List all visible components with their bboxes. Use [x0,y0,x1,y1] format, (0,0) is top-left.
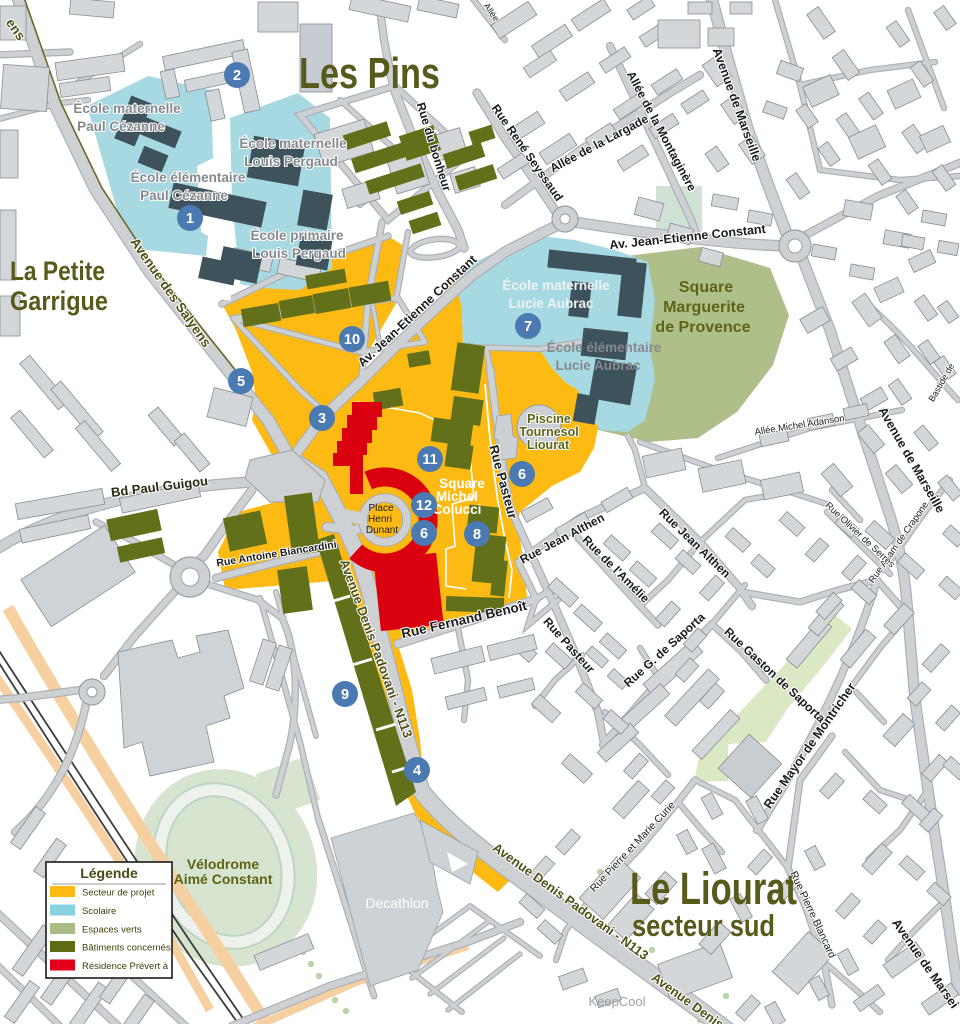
svg-text:École élémentaire: École élémentaire [547,340,662,355]
svg-text:Piscine: Piscine [527,412,571,426]
svg-text:École maternelle: École maternelle [239,136,347,151]
svg-text:Bâtiments concernés: Bâtiments concernés [82,943,171,954]
svg-text:6: 6 [420,526,428,542]
svg-text:Tournesol: Tournesol [519,425,579,439]
svg-text:KeepCool: KeepCool [588,994,645,1009]
svg-text:6: 6 [518,467,526,483]
svg-text:Paul Cézanne: Paul Cézanne [77,119,165,134]
svg-text:10: 10 [344,332,360,348]
svg-text:Vélodrome: Vélodrome [187,856,260,872]
svg-text:Louis Pergaud: Louis Pergaud [252,246,346,261]
svg-text:École élémentaire: École élémentaire [131,170,246,185]
svg-text:Place: Place [368,503,393,514]
svg-text:Scolaire: Scolaire [82,906,116,917]
svg-text:9: 9 [341,687,349,703]
svg-text:1: 1 [186,211,194,227]
svg-text:Liourat: Liourat [527,438,570,452]
svg-text:3: 3 [318,411,326,427]
svg-text:12: 12 [416,498,432,514]
svg-text:de Provence: de Provence [655,319,750,336]
svg-text:secteur sud: secteur sud [632,908,775,943]
svg-text:École primaire: École primaire [250,228,344,243]
svg-text:École maternelle: École maternelle [502,278,610,293]
svg-text:Lucie Aubrac: Lucie Aubrac [555,358,641,373]
svg-text:Lucie Aubrac: Lucie Aubrac [508,296,594,311]
svg-text:Secteur de projet: Secteur de projet [82,888,155,899]
svg-text:Légende: Légende [80,865,138,881]
svg-text:Louis Pergaud: Louis Pergaud [244,154,338,169]
svg-text:Colucci: Colucci [433,502,482,517]
svg-text:4: 4 [413,763,421,779]
svg-text:2: 2 [233,68,241,84]
svg-text:Les Pins: Les Pins [299,49,440,98]
svg-text:Le Liourat: Le Liourat [630,863,797,914]
svg-text:Square: Square [679,279,733,296]
svg-text:7: 7 [524,319,532,335]
svg-text:Garrigue: Garrigue [10,286,108,316]
svg-text:La Petite: La Petite [10,256,105,286]
svg-text:Paul Cézanne: Paul Cézanne [140,188,228,203]
svg-text:11: 11 [422,452,437,468]
svg-text:École maternelle: École maternelle [73,101,181,116]
svg-text:Marguerite: Marguerite [663,299,745,316]
svg-text:Espaces verts: Espaces verts [82,925,142,936]
svg-text:5: 5 [237,374,245,390]
svg-text:Decathlon: Decathlon [365,895,428,911]
svg-text:Aimé Constant: Aimé Constant [174,871,273,887]
svg-text:Dunant: Dunant [366,525,398,536]
svg-text:8: 8 [473,527,481,543]
svg-text:Henri: Henri [368,514,392,525]
